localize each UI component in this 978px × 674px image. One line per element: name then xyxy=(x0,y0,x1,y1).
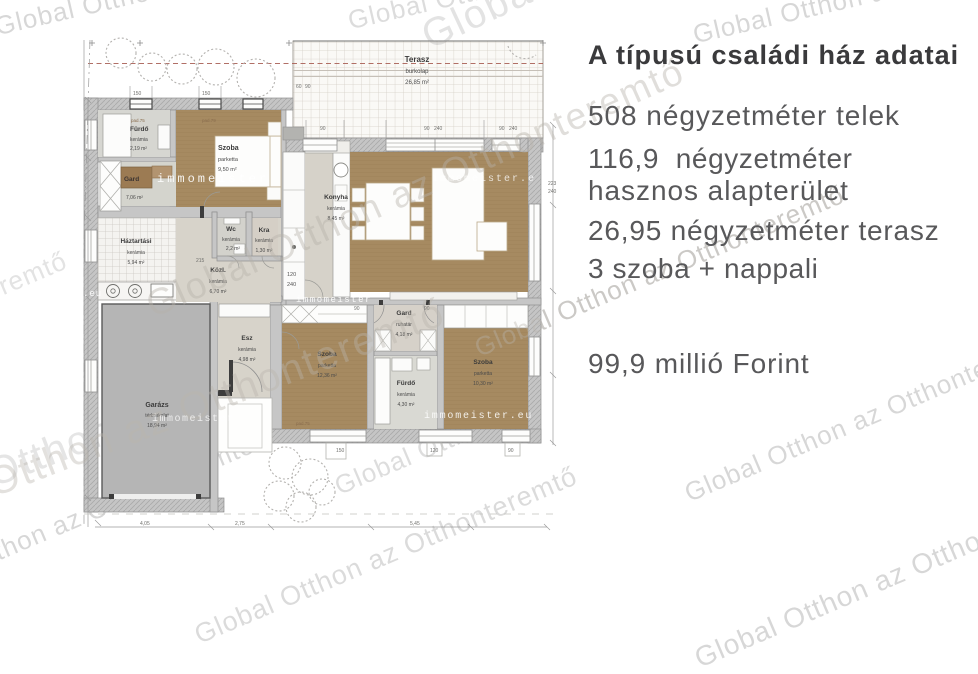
svg-text:240: 240 xyxy=(287,282,296,288)
svg-text:kerámia: kerámia xyxy=(222,237,240,243)
svg-text:60: 60 xyxy=(296,84,302,90)
svg-text:kerámia: kerámia xyxy=(238,347,256,353)
svg-text:10,30 m²: 10,30 m² xyxy=(473,381,493,387)
svg-text:90: 90 xyxy=(424,126,430,132)
svg-text:Fürdő: Fürdő xyxy=(130,126,148,133)
svg-text:8,45 m²: 8,45 m² xyxy=(328,216,345,222)
svg-text:ruhatár: ruhatár xyxy=(396,322,412,328)
svg-text:parketta: parketta xyxy=(318,363,336,369)
svg-text:Esz: Esz xyxy=(241,335,253,342)
svg-text:burkolap: burkolap xyxy=(405,69,429,75)
svg-text:Szoba: Szoba xyxy=(218,145,239,152)
svg-text:120: 120 xyxy=(430,448,439,454)
svg-text:pad.79: pad.79 xyxy=(202,118,216,123)
svg-text:pad.75: pad.75 xyxy=(131,118,145,123)
svg-text:240: 240 xyxy=(509,126,518,132)
svg-text:Gard: Gard xyxy=(396,310,411,317)
svg-text:240: 240 xyxy=(434,126,443,132)
svg-text:90: 90 xyxy=(424,306,430,312)
svg-text:Konyha: Konyha xyxy=(324,194,348,201)
svg-text:5,94 m²: 5,94 m² xyxy=(128,260,145,266)
svg-text:kerámia: kerámia xyxy=(130,137,148,143)
svg-text:Szoba: Szoba xyxy=(317,351,337,358)
svg-text:150: 150 xyxy=(202,91,211,97)
svg-text:parketta: parketta xyxy=(474,371,492,377)
svg-text:90: 90 xyxy=(354,306,360,312)
svg-text:Háztartási: Háztartási xyxy=(120,238,151,245)
svg-text:6,70 m²: 6,70 m² xyxy=(210,289,227,295)
svg-text:Wc: Wc xyxy=(226,226,236,233)
svg-text:12,36 m²: 12,36 m² xyxy=(317,373,337,379)
svg-text:5,45: 5,45 xyxy=(410,521,420,527)
svg-text:Szoba: Szoba xyxy=(473,359,493,366)
svg-text:2,2 m²: 2,2 m² xyxy=(226,246,241,252)
svg-text:parketta: parketta xyxy=(218,157,239,163)
svg-text:215: 215 xyxy=(196,258,205,264)
svg-text:240: 240 xyxy=(548,189,557,195)
svg-text:Garázs: Garázs xyxy=(145,402,168,409)
svg-text:kerámia: kerámia xyxy=(127,250,145,256)
svg-text:kerámia: kerámia xyxy=(327,206,345,212)
svg-text:Közl.: Közl. xyxy=(210,267,226,274)
svg-text:Kra: Kra xyxy=(259,227,270,234)
svg-text:90: 90 xyxy=(499,126,505,132)
svg-text:Gard: Gard xyxy=(124,176,139,183)
svg-text:4,05: 4,05 xyxy=(140,521,150,527)
svg-text:4,18 m²: 4,18 m² xyxy=(396,332,413,338)
svg-text:120: 120 xyxy=(287,272,296,278)
svg-text:1,30 m²: 1,30 m² xyxy=(256,248,273,254)
svg-text:90: 90 xyxy=(305,84,311,90)
svg-text:7,06 m²: 7,06 m² xyxy=(126,195,143,201)
svg-text:2,75: 2,75 xyxy=(235,521,245,527)
svg-text:90: 90 xyxy=(508,448,514,454)
svg-text:Terasz: Terasz xyxy=(405,55,430,64)
svg-text:150: 150 xyxy=(133,91,142,97)
svg-text:150: 150 xyxy=(336,448,345,454)
svg-text:pad.75: pad.75 xyxy=(296,421,310,426)
svg-text:223: 223 xyxy=(548,181,557,187)
svg-text:26,85 m²: 26,85 m² xyxy=(405,80,429,86)
svg-text:Fürdő: Fürdő xyxy=(397,380,415,387)
svg-text:90: 90 xyxy=(320,126,326,132)
svg-text:kerámia: kerámia xyxy=(255,238,273,244)
svg-text:2,19 m²: 2,19 m² xyxy=(130,146,147,152)
svg-text:kerámia: kerámia xyxy=(209,279,227,285)
svg-text:4,30 m²: 4,30 m² xyxy=(398,402,415,408)
svg-text:kerámia: kerámia xyxy=(397,392,415,398)
svg-text:4,98 m²: 4,98 m² xyxy=(239,357,256,363)
